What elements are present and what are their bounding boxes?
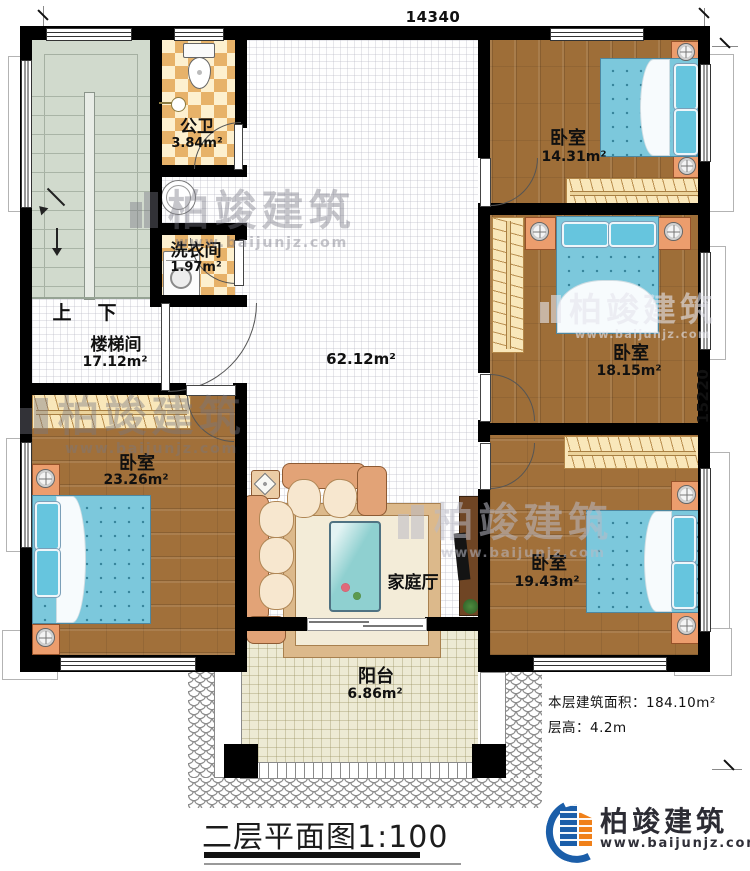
sofa-cushion — [259, 501, 294, 538]
wardrobe — [32, 394, 191, 429]
sofa-cushion — [259, 573, 294, 610]
lamp — [530, 222, 549, 241]
floorplan-canvas: 公卫 3.84m² 洗衣间 1.97m² 上 下 楼梯间 17.12m² 62.… — [0, 0, 750, 871]
room-label-bedroom1: 卧室 — [550, 129, 586, 149]
pillow — [672, 562, 696, 609]
room-area-stairhall: 17.12m² — [82, 355, 147, 370]
plan-title: 二层平面图1:100 — [202, 812, 448, 856]
note-floor-area: 本层建筑面积：184.10m² — [548, 691, 716, 711]
pillow — [562, 222, 609, 247]
stair-arrow-head — [52, 248, 62, 256]
sliding-panel — [363, 625, 423, 627]
pillow — [674, 64, 698, 110]
wall-bedrooms-left-c — [478, 489, 490, 672]
room-area-bedroom2: 18.15m² — [596, 364, 661, 379]
door-leaf-bathroom — [234, 124, 243, 170]
wall-br2-br3 — [478, 423, 710, 435]
brand-site: www.baijunjz.com — [600, 836, 750, 851]
door-leaf-bedroom3 — [480, 443, 491, 490]
pillow — [35, 549, 60, 597]
toilet-tank — [183, 43, 215, 58]
room-label-bath: 公卫 — [180, 118, 214, 137]
window-bottom-bedroom4 — [60, 657, 196, 671]
stair-down-label: 下 — [97, 303, 116, 324]
logo-building-blue-icon — [560, 804, 577, 846]
wall-bedrooms-left-b — [478, 215, 490, 373]
window-top-stairs — [46, 28, 132, 41]
wall-bedroom4-right — [235, 390, 247, 655]
room-area-bedroom4: 23.26m² — [103, 473, 168, 488]
plan-title-scale: 1:100 — [357, 820, 448, 855]
plan-title-name: 二层平面图 — [202, 820, 357, 855]
room-label-laundry: 洗衣间 — [171, 242, 222, 261]
door-leaf-bedroom1 — [480, 158, 491, 207]
window-top-bedroom1 — [550, 28, 644, 41]
window-right-bedroom2 — [700, 252, 711, 350]
wall-bedrooms-left-stub3 — [478, 435, 490, 442]
title-underline-thick — [204, 852, 420, 858]
wall-hall-bottom-a — [243, 617, 307, 631]
roof-tiles-left — [188, 656, 214, 778]
lamp — [677, 43, 695, 61]
dimension-top: 14340 — [403, 8, 463, 26]
lamp — [36, 628, 55, 647]
room-label-stairhall: 楼梯间 — [91, 336, 142, 355]
stair-bottom-line — [32, 297, 150, 299]
window-right-bedroom1 — [700, 64, 711, 162]
bed-sheet — [56, 496, 86, 623]
room-area-bedroom1: 14.31m² — [541, 150, 606, 165]
lamp — [677, 485, 696, 504]
room-area-bath: 3.84m² — [171, 137, 222, 151]
door-leaf-bedroom2 — [480, 374, 491, 422]
sofa-cushion — [259, 537, 294, 574]
wall-br1-br2 — [478, 203, 710, 215]
dimension-right: 15220 — [694, 366, 712, 426]
balcony-pillar-left — [224, 744, 258, 778]
note-floor-height: 层高：4.2m — [548, 716, 627, 736]
pillow — [674, 109, 698, 155]
wardrobe — [492, 217, 524, 353]
brand-name: 柏竣建筑 — [600, 800, 728, 840]
lamp — [677, 616, 696, 635]
wall-hall-bottom-b — [425, 617, 480, 631]
wall-bedrooms-left-a — [478, 40, 490, 158]
room-label-hall: 家庭厅 — [388, 574, 439, 593]
door-leaf-bedroom4 — [186, 385, 236, 396]
wardrobe — [564, 436, 700, 469]
roof-tiles-bottom — [188, 778, 542, 808]
bed-sheet — [640, 59, 670, 156]
room-label-balcony: 阳台 — [358, 667, 394, 687]
room-area-laundry: 1.97m² — [170, 261, 221, 275]
bed-sheet — [644, 511, 672, 612]
sliding-panel — [309, 621, 369, 623]
balcony-rail-bottom — [240, 762, 476, 779]
lamp — [664, 222, 683, 241]
lamp — [36, 469, 55, 488]
stair-rail — [84, 92, 95, 300]
dim-ext-line — [712, 46, 738, 47]
room-label-bedroom3: 卧室 — [531, 554, 567, 574]
window-left-bedroom4 — [21, 442, 32, 548]
room-label-bedroom2: 卧室 — [613, 344, 649, 364]
room-area-bedroom3: 19.43m² — [514, 575, 579, 590]
dim-ext-line — [712, 769, 742, 770]
wall-stair-bath — [150, 40, 162, 307]
stair-up-label: 上 — [52, 303, 71, 324]
towel-ring — [171, 97, 186, 112]
dim-ext-line — [704, 8, 705, 26]
pillow — [35, 502, 60, 550]
wall-bath-right — [235, 40, 247, 128]
wash-basin — [161, 180, 196, 215]
plant — [463, 599, 478, 614]
balcony-pillar-right — [472, 744, 506, 778]
room-area-hall: 62.12m² — [326, 351, 396, 368]
room-area-balcony: 6.86m² — [347, 687, 402, 702]
pillow — [609, 222, 656, 247]
lamp — [678, 157, 696, 175]
window-right-bedroom3 — [700, 468, 711, 632]
coffee-table — [329, 521, 381, 612]
door-leaf-laundry — [234, 240, 244, 286]
window-bottom-bedroom3 — [533, 657, 667, 671]
title-underline-thin — [204, 863, 461, 865]
towel-bar — [159, 102, 172, 104]
stair-arrow-line — [56, 228, 58, 250]
wall-laundry-right-stub — [235, 223, 247, 240]
window-top-bath — [174, 28, 224, 41]
door-leaf-stairhall — [161, 303, 170, 391]
window-left-stairs — [21, 60, 32, 208]
pillow — [672, 516, 696, 563]
room-label-bedroom4: 卧室 — [119, 454, 155, 474]
bed-sheet — [557, 280, 658, 333]
sofa-armrest-right — [357, 466, 387, 516]
